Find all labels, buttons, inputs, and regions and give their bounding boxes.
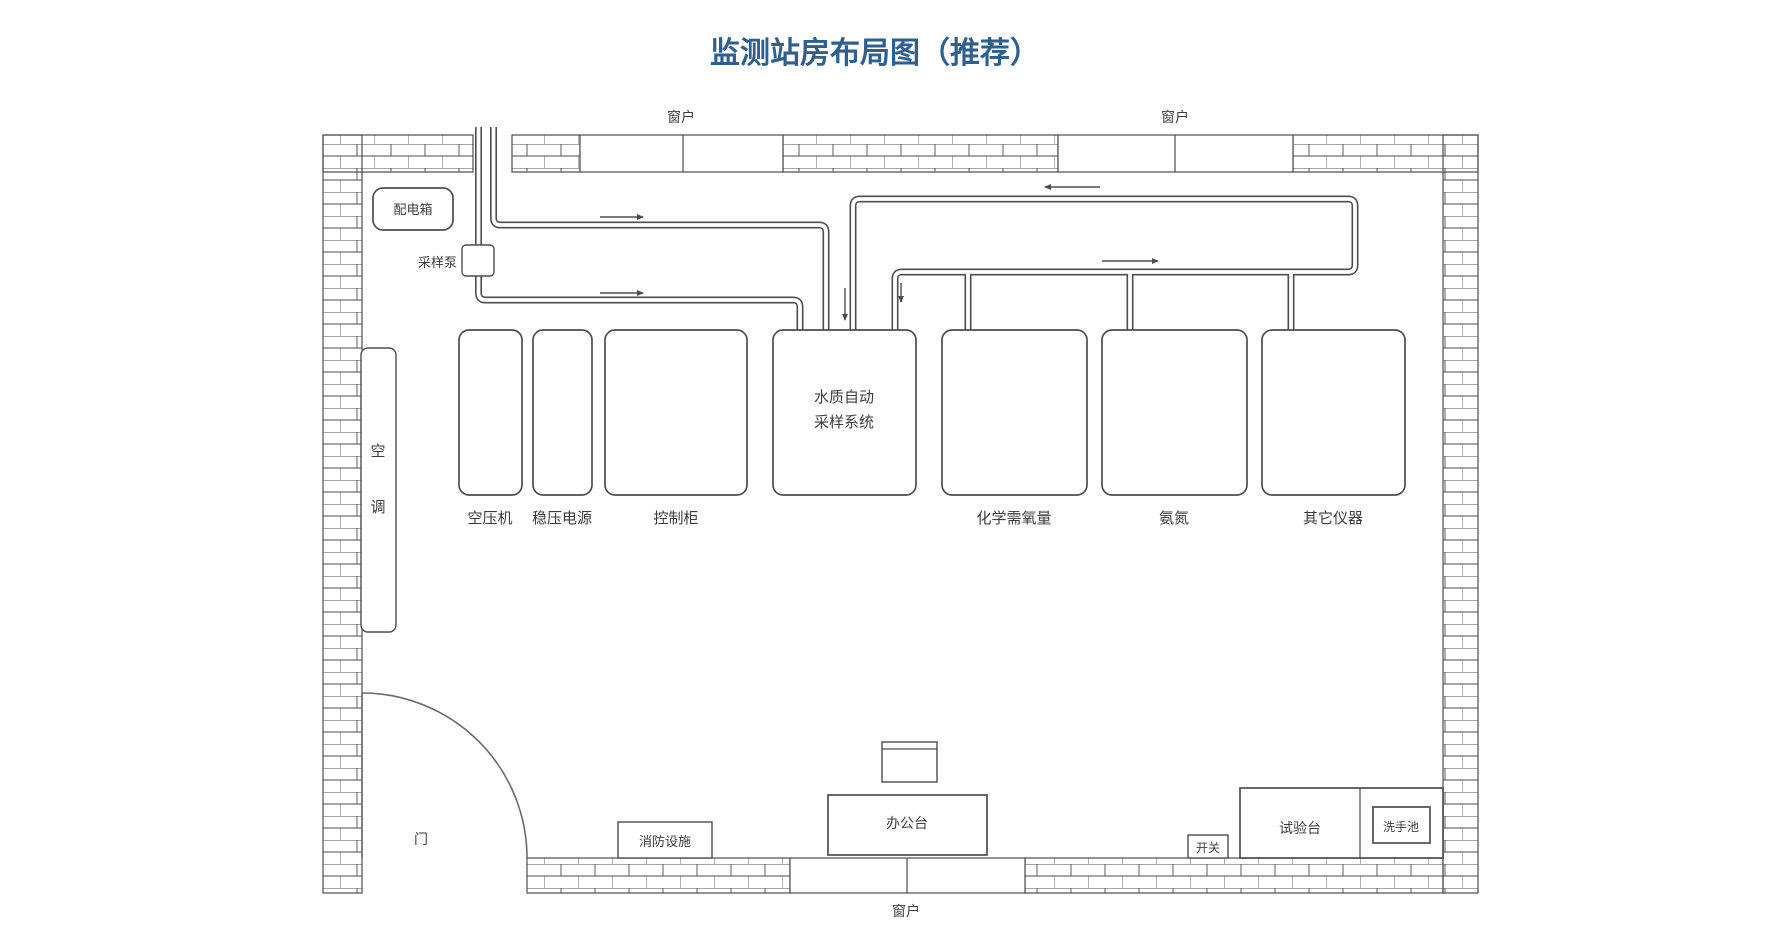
air-compressor-label: 空压机 (467, 510, 512, 527)
wall-top-1 (323, 135, 473, 172)
door-swing-arc (362, 693, 527, 858)
fire-equipment-label: 消防设施 (639, 834, 691, 849)
ammonia-analyzer-label: 氨氮 (1159, 510, 1189, 527)
window-label-top-left: 窗户 (667, 109, 695, 125)
ammonia-analyzer (1102, 330, 1247, 495)
distribution-box-label: 配电箱 (393, 202, 432, 217)
door: 门 (362, 693, 527, 858)
test-bench-area: 试验台 洗手池 (1240, 788, 1443, 858)
water-auto-sampler (773, 330, 916, 495)
cod-analyzer (942, 330, 1087, 495)
control-cabinet-label: 控制柜 (653, 510, 698, 527)
chair (882, 742, 937, 782)
window-label-bottom: 窗户 (892, 903, 920, 919)
sampling-pump (462, 245, 494, 276)
other-instruments-label: 其它仪器 (1303, 509, 1363, 527)
water-auto-sampler-label-line2: 采样系统 (814, 414, 874, 431)
equipment-row: 水质自动 采样系统 空压机 稳压电源 控制柜 化学需氧量 氨氮 其它仪器 (459, 330, 1405, 527)
wall-left (323, 135, 362, 893)
test-bench-label: 试验台 (1279, 820, 1321, 836)
switch-label: 开关 (1196, 841, 1220, 855)
wall-right (1443, 135, 1478, 893)
voltage-stabilizer-label: 稳压电源 (532, 510, 592, 527)
window-top-left (580, 135, 783, 172)
wall-top-2 (512, 135, 580, 172)
cod-analyzer-label: 化学需氧量 (976, 510, 1051, 527)
other-instruments (1262, 330, 1405, 495)
wall-bottom-2 (1025, 858, 1443, 893)
window-label-top-right: 窗户 (1161, 109, 1189, 125)
window-frame (580, 135, 783, 172)
page-title: 监测站房布局图（推荐） (710, 36, 1040, 70)
wall-top-3 (783, 135, 1058, 172)
wall-bottom-1 (527, 858, 790, 893)
voltage-stabilizer (533, 330, 592, 495)
control-cabinet (605, 330, 747, 495)
window-bottom (790, 858, 1025, 893)
air-conditioner (361, 348, 396, 632)
door-label: 门 (414, 831, 428, 847)
office-area: 办公台 (828, 742, 987, 855)
sink-label: 洗手池 (1383, 820, 1419, 834)
sampling-pump-label: 采样泵 (418, 255, 457, 270)
floor-plan-diagram: 监测站房布局图（推荐） (0, 0, 1772, 943)
water-auto-sampler-label-line1: 水质自动 (814, 389, 874, 406)
window-top-right (1058, 135, 1293, 172)
air-compressor (459, 330, 522, 495)
floor-plan-page: 监测站房布局图（推荐） (0, 0, 1772, 943)
wall-top-4 (1293, 135, 1478, 172)
office-desk-label: 办公台 (886, 815, 928, 831)
